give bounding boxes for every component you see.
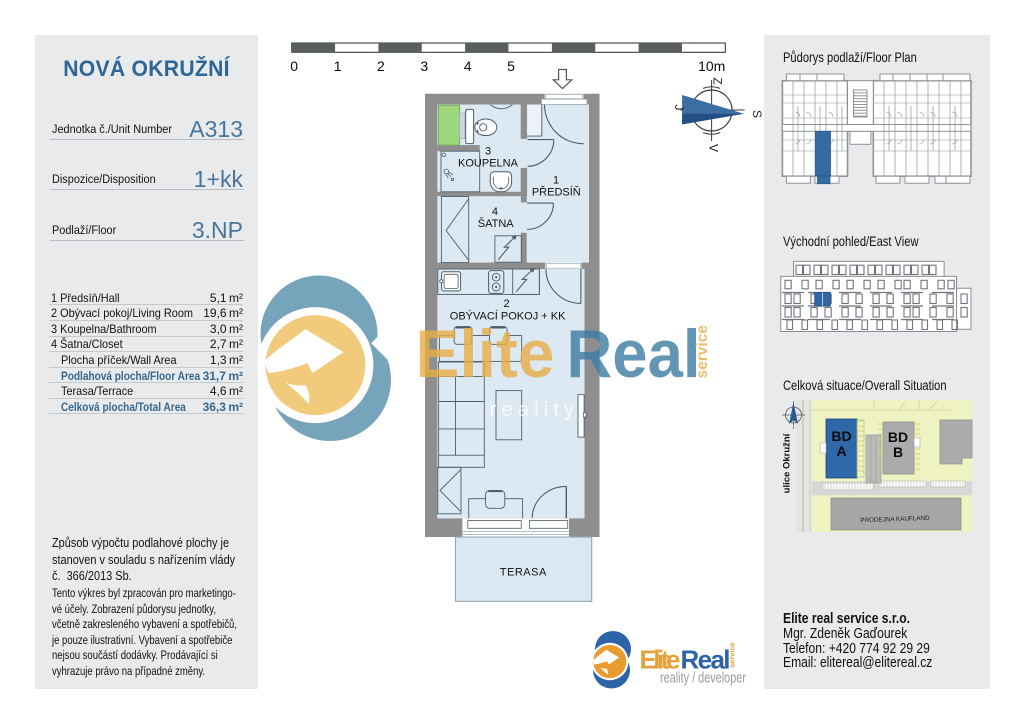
svg-text:service: service bbox=[694, 325, 711, 379]
svg-text:2: 2 bbox=[503, 298, 509, 310]
svg-text:V: V bbox=[707, 144, 721, 152]
svg-text:3: 3 bbox=[485, 146, 491, 158]
svg-text:J: J bbox=[672, 105, 686, 111]
svg-text:3: 3 bbox=[420, 58, 428, 74]
svg-text:reality: reality bbox=[490, 398, 580, 421]
svg-text:TERASA: TERASA bbox=[500, 567, 547, 579]
svg-text:5: 5 bbox=[507, 58, 515, 74]
svg-text:KOUPELNA: KOUPELNA bbox=[458, 158, 519, 170]
svg-text:10m: 10m bbox=[698, 58, 725, 74]
svg-text:1: 1 bbox=[334, 58, 342, 74]
svg-text:S: S bbox=[750, 110, 764, 118]
svg-text:1: 1 bbox=[553, 175, 559, 187]
svg-text:Z: Z bbox=[711, 77, 725, 84]
svg-text:0: 0 bbox=[290, 58, 298, 74]
svg-text:PŘEDSÍŇ: PŘEDSÍŇ bbox=[532, 186, 581, 199]
svg-text:2: 2 bbox=[377, 58, 385, 74]
svg-text:ŠATNA: ŠATNA bbox=[478, 217, 515, 230]
svg-text:4: 4 bbox=[464, 58, 472, 74]
svg-text:4: 4 bbox=[492, 206, 498, 218]
